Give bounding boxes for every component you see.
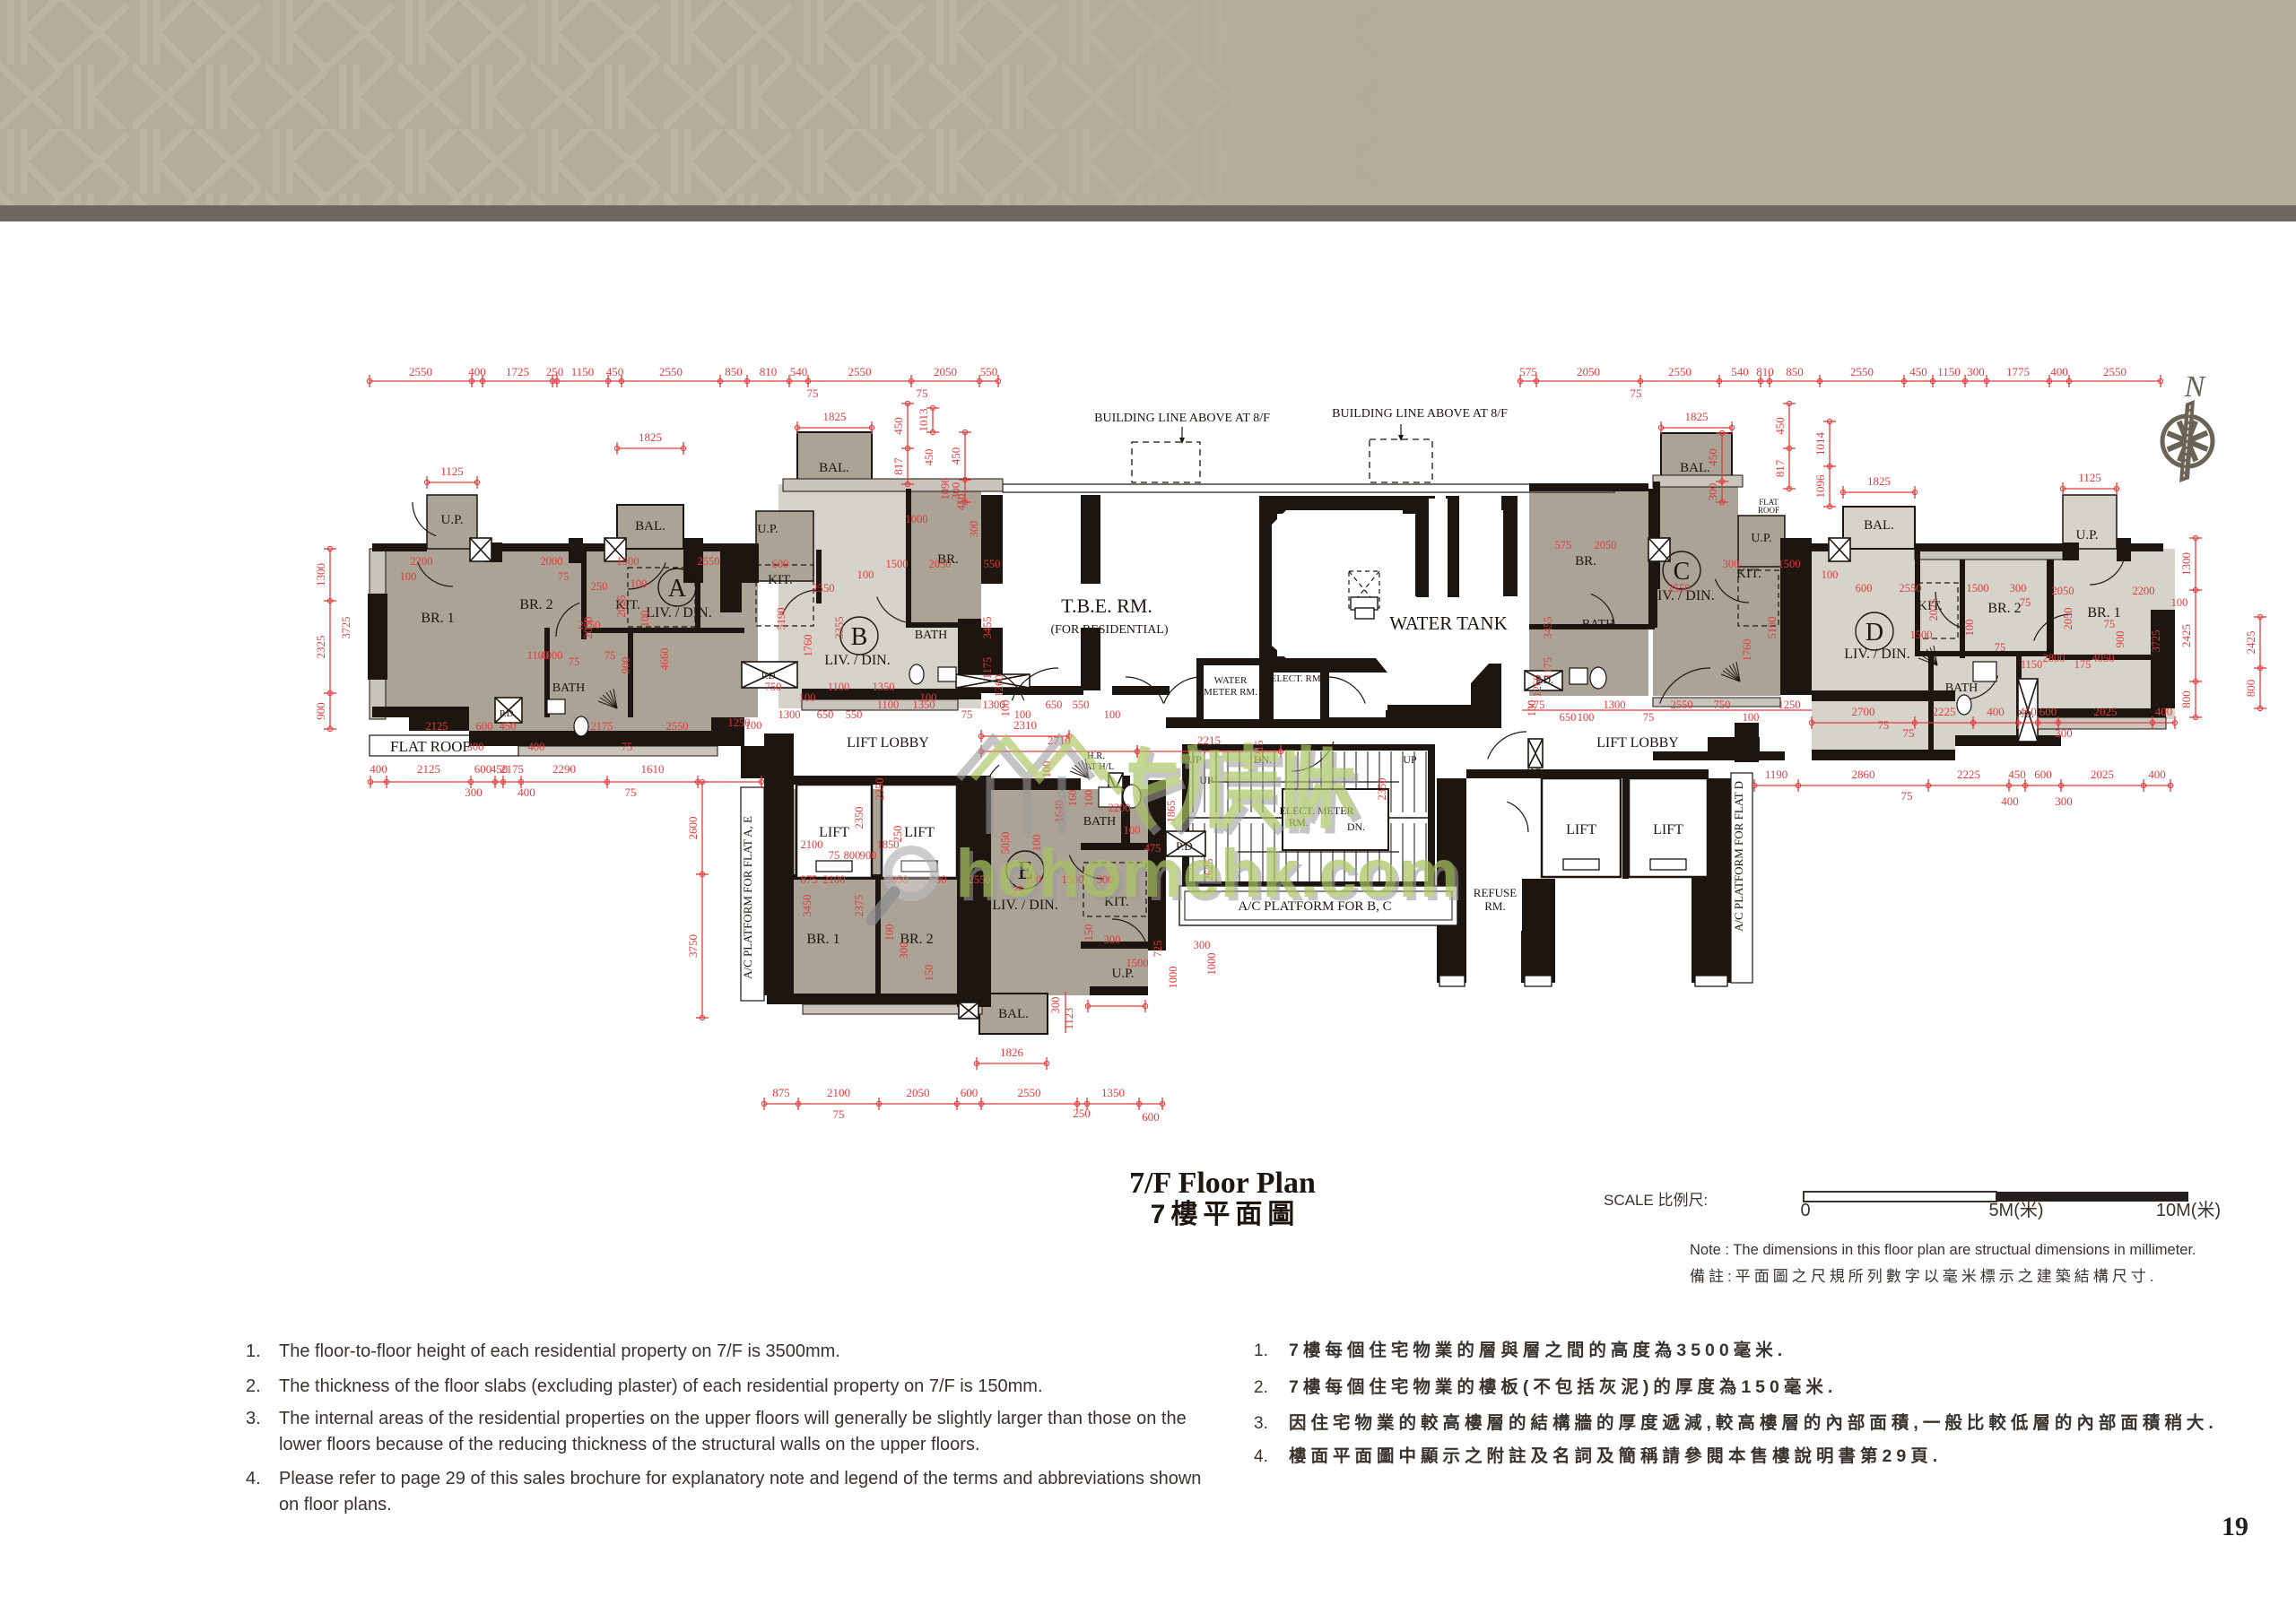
svg-text:1850: 1850 <box>877 838 900 851</box>
svg-text:900: 900 <box>860 849 877 862</box>
svg-text:UP: UP <box>1403 753 1417 766</box>
svg-text:2550: 2550 <box>409 365 432 378</box>
svg-text:810: 810 <box>760 365 778 378</box>
svg-text:1500: 1500 <box>1779 558 1801 570</box>
svg-text:1825: 1825 <box>823 410 847 423</box>
svg-text:75: 75 <box>2104 618 2116 630</box>
svg-text:lower floors because of the re: lower floors because of the reducing thi… <box>279 1435 980 1454</box>
svg-text:1300: 1300 <box>1604 699 1626 711</box>
svg-text:100: 100 <box>400 570 417 583</box>
svg-text:1.: 1. <box>1254 1341 1268 1360</box>
svg-text:1190: 1190 <box>1765 768 1788 781</box>
svg-text:REFUSE: REFUSE <box>1474 886 1517 899</box>
svg-text:0: 0 <box>1800 1201 1810 1220</box>
svg-text:2125: 2125 <box>426 720 448 733</box>
svg-text:2700: 2700 <box>1852 705 1875 718</box>
svg-text:FLAT ROOF: FLAT ROOF <box>390 738 471 755</box>
svg-text:1760: 1760 <box>802 635 814 657</box>
svg-text:1096: 1096 <box>1813 474 1827 499</box>
svg-text:175: 175 <box>2074 658 2092 671</box>
svg-text:2350: 2350 <box>874 778 886 801</box>
svg-text:900: 900 <box>620 657 632 674</box>
svg-text:100: 100 <box>639 611 651 628</box>
svg-text:100: 100 <box>1822 568 1839 581</box>
svg-text:A/C PLATFORM FOR FLAT D: A/C PLATFORM FOR FLAT D <box>1732 781 1745 932</box>
svg-text:The thickness of the floor sla: The thickness of the floor slabs (exclud… <box>279 1376 1043 1396</box>
svg-text:2860: 2860 <box>1852 768 1875 781</box>
svg-text:4.: 4. <box>1254 1447 1268 1466</box>
svg-text:2550: 2550 <box>1671 699 1693 711</box>
svg-text:H.R.: H.R. <box>1527 768 1544 777</box>
svg-text:2100: 2100 <box>823 873 846 886</box>
svg-text:ELECT. RM.: ELECT. RM. <box>1271 673 1324 684</box>
svg-text:300: 300 <box>1706 483 1719 501</box>
svg-text:1013: 1013 <box>917 409 930 432</box>
svg-text:400: 400 <box>2001 794 2019 808</box>
svg-text:75: 75 <box>604 649 616 662</box>
svg-text:1260: 1260 <box>1531 675 1544 698</box>
svg-text:LIFT: LIFT <box>904 825 935 840</box>
svg-text:250: 250 <box>1073 1107 1091 1120</box>
svg-text:3.: 3. <box>1254 1414 1268 1433</box>
svg-text:250: 250 <box>546 365 564 378</box>
svg-text:2550: 2550 <box>813 582 835 595</box>
svg-text:150: 150 <box>923 965 935 982</box>
svg-text:2175: 2175 <box>591 720 613 733</box>
svg-text:75: 75 <box>2020 596 2031 609</box>
svg-text:75: 75 <box>807 386 819 400</box>
svg-text:BATH: BATH <box>1945 681 1979 695</box>
svg-text:1175: 1175 <box>981 657 994 680</box>
svg-text:1350: 1350 <box>873 681 895 693</box>
svg-text:1825: 1825 <box>639 430 662 444</box>
svg-text:1825: 1825 <box>1685 410 1709 423</box>
svg-text:3.: 3. <box>246 1409 261 1428</box>
svg-text:U.P.: U.P. <box>2075 528 2098 542</box>
svg-text:2050: 2050 <box>1595 539 1617 551</box>
svg-text:540: 540 <box>790 365 808 378</box>
svg-text:575: 575 <box>1519 365 1537 378</box>
svg-text:備註:平面圖之尺規所列數字以毫米標示之建築結構尺寸.: 備註:平面圖之尺規所列數字以毫米標示之建築結構尺寸. <box>1690 1268 2157 1285</box>
svg-text:400: 400 <box>1987 705 2005 718</box>
svg-text:A/C PLATFORM FOR FLAT A, E: A/C PLATFORM FOR FLAT A, E <box>741 816 754 979</box>
svg-text:LIFT: LIFT <box>1653 822 1683 838</box>
svg-text:1250: 1250 <box>1779 699 1801 711</box>
svg-text:600: 600 <box>961 1086 978 1099</box>
svg-text:4000: 4000 <box>541 649 563 662</box>
svg-text:600: 600 <box>474 762 492 776</box>
svg-text:400: 400 <box>2155 705 2173 718</box>
svg-text:U.P.: U.P. <box>1751 532 1771 545</box>
svg-text:2100: 2100 <box>801 838 823 851</box>
svg-text:4050: 4050 <box>2092 652 2115 664</box>
svg-text:75: 75 <box>569 655 580 668</box>
svg-text:U.P.: U.P. <box>440 513 463 527</box>
svg-text:800: 800 <box>2244 680 2257 698</box>
svg-text:METER RM.: METER RM. <box>1204 687 1257 698</box>
svg-text:2225: 2225 <box>1933 705 1956 718</box>
svg-text:2550: 2550 <box>1668 582 1691 595</box>
svg-text:1500: 1500 <box>886 558 909 570</box>
svg-text:550: 550 <box>1073 699 1090 711</box>
svg-text:DN.: DN. <box>1347 820 1365 833</box>
svg-text:100: 100 <box>857 568 874 581</box>
svg-text:BATH: BATH <box>915 629 948 642</box>
svg-text:2550: 2550 <box>1668 365 1692 378</box>
svg-text:575: 575 <box>1528 699 1545 711</box>
svg-text:The floor-to-floor height of e: The floor-to-floor height of each reside… <box>279 1341 840 1361</box>
svg-text:2050: 2050 <box>1577 365 1600 378</box>
svg-text:300: 300 <box>1104 933 1121 946</box>
svg-text:BR.: BR. <box>1575 554 1596 568</box>
svg-text:2.: 2. <box>1254 1378 1268 1397</box>
svg-text:100: 100 <box>1104 708 1121 721</box>
svg-text:WATER: WATER <box>1214 675 1248 686</box>
svg-text:300: 300 <box>2055 794 2073 808</box>
svg-text:BAL.: BAL. <box>998 1007 1029 1021</box>
svg-text:2050: 2050 <box>929 558 952 570</box>
svg-text:300: 300 <box>467 741 484 753</box>
svg-text:600: 600 <box>772 558 789 570</box>
svg-text:LIFT LOBBY: LIFT LOBBY <box>1596 735 1679 751</box>
svg-text:7樓每個住宅物業的樓板(不包括灰泥)的厚度為150毫米.: 7樓每個住宅物業的樓板(不包括灰泥)的厚度為150毫米. <box>1289 1376 1837 1397</box>
svg-text:BAL.: BAL. <box>819 461 849 475</box>
svg-text:KIT.: KIT. <box>768 573 793 587</box>
svg-text:2425: 2425 <box>2244 631 2257 655</box>
svg-text:on floor plans.: on floor plans. <box>279 1495 392 1515</box>
svg-text:75: 75 <box>558 570 570 583</box>
svg-text:BR. 1: BR. 1 <box>421 611 454 626</box>
svg-text:2050: 2050 <box>907 1086 930 1099</box>
svg-text:575: 575 <box>1555 539 1572 551</box>
svg-text:2550: 2550 <box>698 555 720 568</box>
svg-text:75: 75 <box>1901 789 1913 803</box>
svg-text:T.B.E. RM.: T.B.E. RM. <box>1061 595 1152 617</box>
svg-text:300: 300 <box>949 482 962 500</box>
svg-text:100: 100 <box>1083 790 1095 807</box>
svg-text:300: 300 <box>465 785 483 799</box>
svg-text:LIV. / DIN.: LIV. / DIN. <box>1844 647 1909 662</box>
svg-text:N: N <box>2184 370 2207 404</box>
svg-text:75: 75 <box>829 849 840 862</box>
svg-text:樓面平面圖中顯示之附註及名詞及簡稱請參閱本售樓說明書第29頁: 樓面平面圖中顯示之附註及名詞及簡稱請參閱本售樓說明書第29頁. <box>1289 1445 1942 1466</box>
svg-text:LIV. / DIN.: LIV. / DIN. <box>646 605 711 621</box>
svg-text:BR. 2: BR. 2 <box>519 597 552 612</box>
svg-text:1260: 1260 <box>993 675 1005 698</box>
svg-text:2.: 2. <box>246 1376 261 1396</box>
svg-text:(FOR RESIDENTIAL): (FOR RESIDENTIAL) <box>1050 623 1168 637</box>
svg-text:2200: 2200 <box>411 555 433 568</box>
svg-text:LIFT: LIFT <box>1566 822 1596 838</box>
svg-text:KIT.: KIT. <box>1736 567 1761 581</box>
svg-text:3455: 3455 <box>981 617 994 639</box>
svg-text:1.: 1. <box>246 1341 261 1361</box>
svg-text:LIFT: LIFT <box>819 825 849 840</box>
svg-text:2000: 2000 <box>541 555 563 568</box>
svg-text:100: 100 <box>1124 824 1141 837</box>
svg-text:540: 540 <box>1731 365 1749 378</box>
svg-text:Please refer to page 29 of thi: Please refer to page 29 of this sales br… <box>279 1469 1201 1488</box>
svg-text:hohomehk.com: hohomehk.com <box>955 836 1459 912</box>
svg-text:100: 100 <box>1743 711 1760 724</box>
svg-text:800: 800 <box>844 849 861 862</box>
svg-text:650: 650 <box>817 708 834 721</box>
svg-text:100: 100 <box>799 691 816 704</box>
svg-text:2600: 2600 <box>686 817 700 840</box>
svg-text:75: 75 <box>961 708 973 721</box>
svg-text:BATH: BATH <box>1083 815 1117 829</box>
svg-text:300: 300 <box>1967 365 1985 378</box>
svg-text:2550: 2550 <box>1900 582 1922 595</box>
svg-text:875: 875 <box>801 873 818 886</box>
svg-text:300: 300 <box>2055 726 2073 740</box>
svg-text:2025: 2025 <box>2094 705 2118 718</box>
svg-text:BATH: BATH <box>1582 618 1615 631</box>
svg-text:2325: 2325 <box>314 636 327 659</box>
svg-text:BATH: BATH <box>552 681 586 695</box>
svg-text:450: 450 <box>1706 448 1719 466</box>
svg-text:2800: 2800 <box>2043 652 2066 664</box>
svg-text:The internal areas of the resi: The internal areas of the residential pr… <box>279 1409 1187 1428</box>
svg-text:ROOF: ROOF <box>1758 506 1779 515</box>
svg-text:550: 550 <box>980 365 998 378</box>
svg-text:100: 100 <box>745 719 762 732</box>
svg-text:1100: 1100 <box>828 681 850 693</box>
svg-text:D: D <box>1865 619 1883 647</box>
svg-text:1000: 1000 <box>906 513 928 525</box>
svg-text:1350: 1350 <box>913 699 935 711</box>
svg-text:1014: 1014 <box>1813 432 1827 456</box>
svg-text:100: 100 <box>1963 620 1976 637</box>
svg-text:2290: 2290 <box>552 762 576 776</box>
svg-text:600: 600 <box>1856 582 1873 595</box>
svg-text:BR. 2: BR. 2 <box>1987 601 2021 616</box>
svg-text:1500: 1500 <box>617 555 639 568</box>
svg-text:1300: 1300 <box>314 563 327 586</box>
svg-text:75: 75 <box>1995 641 2006 654</box>
svg-text:19: 19 <box>2222 1512 2248 1541</box>
svg-text:1760: 1760 <box>1741 639 1753 662</box>
svg-text:7樓平面圖: 7樓平面圖 <box>1151 1200 1300 1229</box>
svg-text:3455: 3455 <box>1542 617 1554 639</box>
svg-text:1826: 1826 <box>1000 1046 1024 1059</box>
svg-text:3450: 3450 <box>801 895 813 917</box>
svg-text:BUILDING LINE ABOVE AT 8/F: BUILDING LINE ABOVE AT 8/F <box>1332 407 1508 421</box>
svg-text:250: 250 <box>591 580 608 593</box>
svg-text:BAL.: BAL. <box>1864 518 1894 533</box>
svg-text:1500: 1500 <box>1910 629 1933 641</box>
svg-text:450: 450 <box>500 720 517 733</box>
svg-text:4.: 4. <box>246 1469 261 1488</box>
svg-text:450: 450 <box>1909 365 1927 378</box>
svg-text:450: 450 <box>2019 705 2037 718</box>
svg-text:P.D.: P.D. <box>500 708 517 719</box>
svg-text:2550: 2550 <box>1018 1086 1041 1099</box>
svg-text:1500: 1500 <box>1967 582 1989 595</box>
svg-text:150: 150 <box>1083 924 1095 942</box>
svg-text:300: 300 <box>1723 558 1740 570</box>
svg-text:1300: 1300 <box>778 708 801 721</box>
svg-text:2550: 2550 <box>666 720 689 733</box>
svg-text:600: 600 <box>2034 768 2052 781</box>
svg-text:650: 650 <box>1560 711 1577 724</box>
svg-text:75: 75 <box>1631 386 1642 400</box>
svg-text:75: 75 <box>917 386 928 400</box>
svg-text:1500: 1500 <box>1126 957 1149 969</box>
svg-text:75: 75 <box>1643 711 1655 724</box>
svg-text:1300: 1300 <box>2179 552 2193 576</box>
svg-text:LIFT LOBBY: LIFT LOBBY <box>847 735 929 751</box>
svg-text:BR. 1: BR. 1 <box>806 932 839 947</box>
svg-text:7/F Floor Plan: 7/F Floor Plan <box>1129 1167 1316 1200</box>
svg-text:100: 100 <box>1578 711 1595 724</box>
svg-text:1775: 1775 <box>2006 365 2030 378</box>
svg-text:75: 75 <box>833 1107 845 1121</box>
svg-text:600: 600 <box>476 720 493 733</box>
svg-text:1125: 1125 <box>440 464 464 478</box>
svg-text:750: 750 <box>1714 699 1731 711</box>
svg-text:2550: 2550 <box>659 365 683 378</box>
svg-text:75: 75 <box>622 741 633 753</box>
svg-text:2550: 2550 <box>848 365 872 378</box>
svg-text:2025: 2025 <box>1927 599 1940 621</box>
svg-text:5190: 5190 <box>1766 617 1779 639</box>
svg-text:1150: 1150 <box>1937 365 1961 378</box>
svg-text:7樓每個住宅物業的層與層之間的高度為3500毫米.: 7樓每個住宅物業的層與層之間的高度為3500毫米. <box>1289 1340 1787 1360</box>
svg-text:3355: 3355 <box>833 617 846 639</box>
svg-text:900: 900 <box>2114 631 2126 648</box>
svg-text:2050: 2050 <box>2052 585 2074 597</box>
svg-text:A: A <box>668 575 687 603</box>
svg-text:2025: 2025 <box>2091 768 2114 781</box>
svg-text:BUILDING LINE ABOVE AT 8/F: BUILDING LINE ABOVE AT 8/F <box>1094 412 1270 425</box>
svg-text:300: 300 <box>1049 997 1062 1014</box>
svg-text:875: 875 <box>772 1086 790 1099</box>
svg-text:2175: 2175 <box>500 762 524 776</box>
svg-text:817: 817 <box>891 457 905 475</box>
svg-text:600: 600 <box>1142 1110 1160 1124</box>
svg-text:75: 75 <box>1878 719 1890 732</box>
svg-text:400: 400 <box>2148 768 2166 781</box>
svg-text:400: 400 <box>370 762 387 776</box>
svg-text:100: 100 <box>631 577 648 590</box>
svg-text:1125: 1125 <box>2078 471 2101 484</box>
svg-text:SCALE 比例尺:: SCALE 比例尺: <box>1604 1192 1708 1209</box>
svg-text:725: 725 <box>1152 941 1164 958</box>
svg-text:850: 850 <box>1786 365 1804 378</box>
svg-text:U.P.: U.P. <box>757 523 778 536</box>
svg-text:1300: 1300 <box>983 699 1005 711</box>
svg-text:2025: 2025 <box>615 595 628 618</box>
svg-text:300: 300 <box>968 521 980 538</box>
svg-text:1610: 1610 <box>641 762 665 776</box>
svg-text:100: 100 <box>883 924 896 942</box>
svg-text:75: 75 <box>625 785 637 799</box>
svg-text:450: 450 <box>1773 417 1787 435</box>
svg-text:2200: 2200 <box>1109 802 1131 814</box>
svg-text:5190: 5190 <box>775 608 787 630</box>
svg-text:2215: 2215 <box>1197 733 1221 747</box>
svg-text:160: 160 <box>1066 790 1079 807</box>
svg-text:1000: 1000 <box>1205 953 1218 976</box>
svg-text:WATER TANK: WATER TANK <box>1389 612 1508 634</box>
svg-text:2425: 2425 <box>2179 624 2193 647</box>
svg-text:BAL.: BAL. <box>635 519 665 534</box>
svg-text:900: 900 <box>314 702 327 720</box>
svg-text:1825: 1825 <box>1867 474 1891 488</box>
svg-text:1150: 1150 <box>2021 658 2043 671</box>
svg-text:400: 400 <box>2050 365 2068 378</box>
svg-text:5M(米): 5M(米) <box>1988 1200 2043 1220</box>
svg-text:3750: 3750 <box>686 934 700 958</box>
svg-text:400: 400 <box>517 785 535 799</box>
svg-text:450: 450 <box>2008 768 2026 781</box>
svg-text:1123: 1123 <box>1063 1008 1075 1030</box>
svg-text:2100: 2100 <box>827 1086 850 1099</box>
svg-text:300: 300 <box>898 942 910 959</box>
svg-text:2550: 2550 <box>2103 365 2126 378</box>
svg-text:650: 650 <box>1046 699 1063 711</box>
svg-text:810: 810 <box>1756 365 1774 378</box>
svg-text:2750: 2750 <box>578 619 601 631</box>
svg-text:2550: 2550 <box>1850 365 1874 378</box>
svg-text:2050: 2050 <box>934 365 957 378</box>
svg-text:4660: 4660 <box>658 648 671 671</box>
svg-text:1000: 1000 <box>1167 967 1179 989</box>
svg-text:100: 100 <box>2171 596 2188 609</box>
svg-text:75: 75 <box>1903 726 1915 740</box>
svg-text:Note : The dimensions in this: Note : The dimensions in this floor plan… <box>1690 1242 2196 1258</box>
svg-text:400: 400 <box>528 741 545 753</box>
svg-text:10M(米): 10M(米) <box>2156 1200 2221 1220</box>
svg-text:450: 450 <box>923 449 935 466</box>
svg-text:450: 450 <box>606 365 624 378</box>
svg-text:2350: 2350 <box>853 807 865 829</box>
svg-text:100: 100 <box>1014 708 1031 721</box>
svg-text:800: 800 <box>2179 690 2193 708</box>
svg-text:450: 450 <box>949 447 962 465</box>
svg-text:1350: 1350 <box>1101 1086 1125 1099</box>
svg-text:2225: 2225 <box>1957 768 1980 781</box>
svg-text:300: 300 <box>2010 582 2027 595</box>
svg-text:2375: 2375 <box>853 895 865 917</box>
svg-text:3725: 3725 <box>340 617 352 639</box>
svg-text:550: 550 <box>846 708 863 721</box>
svg-text:1725: 1725 <box>506 365 529 378</box>
svg-text:2125: 2125 <box>417 762 440 776</box>
svg-text:400: 400 <box>468 365 486 378</box>
svg-text:2050: 2050 <box>2062 608 2074 630</box>
svg-text:因住宅物業的較高樓層的結構牆的厚度遞減,較高樓層的內部面積,: 因住宅物業的較高樓層的結構牆的厚度遞減,較高樓層的內部面積,一般比較低層的內部面… <box>1289 1412 2218 1433</box>
svg-text:3725: 3725 <box>2150 630 2162 653</box>
svg-text:850: 850 <box>725 365 743 378</box>
svg-text:600: 600 <box>2039 705 2057 718</box>
svg-text:RM.: RM. <box>1484 899 1505 913</box>
svg-text:2350: 2350 <box>1376 778 1388 801</box>
svg-text:817: 817 <box>1773 459 1787 477</box>
svg-text:B: B <box>851 623 868 651</box>
svg-text:2200: 2200 <box>2133 585 2155 597</box>
svg-text:1100: 1100 <box>877 699 900 711</box>
svg-text:1150: 1150 <box>571 365 595 378</box>
svg-text:1175: 1175 <box>1542 657 1554 680</box>
svg-text:300: 300 <box>1194 939 1211 951</box>
svg-text:550: 550 <box>984 558 1001 570</box>
svg-text:450: 450 <box>891 417 905 435</box>
svg-text:750: 750 <box>765 681 782 693</box>
